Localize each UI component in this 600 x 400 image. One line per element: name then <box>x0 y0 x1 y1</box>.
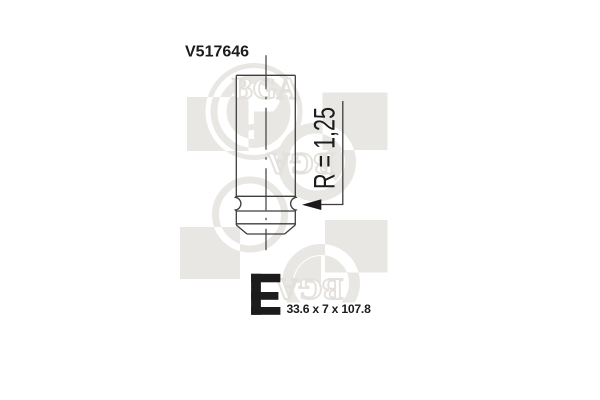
svg-text:R = 1,25: R = 1,25 <box>309 107 341 189</box>
svg-text:33.6 x 7 x 107.8: 33.6 x 7 x 107.8 <box>287 302 372 316</box>
svg-text:V517646: V517646 <box>185 44 249 61</box>
